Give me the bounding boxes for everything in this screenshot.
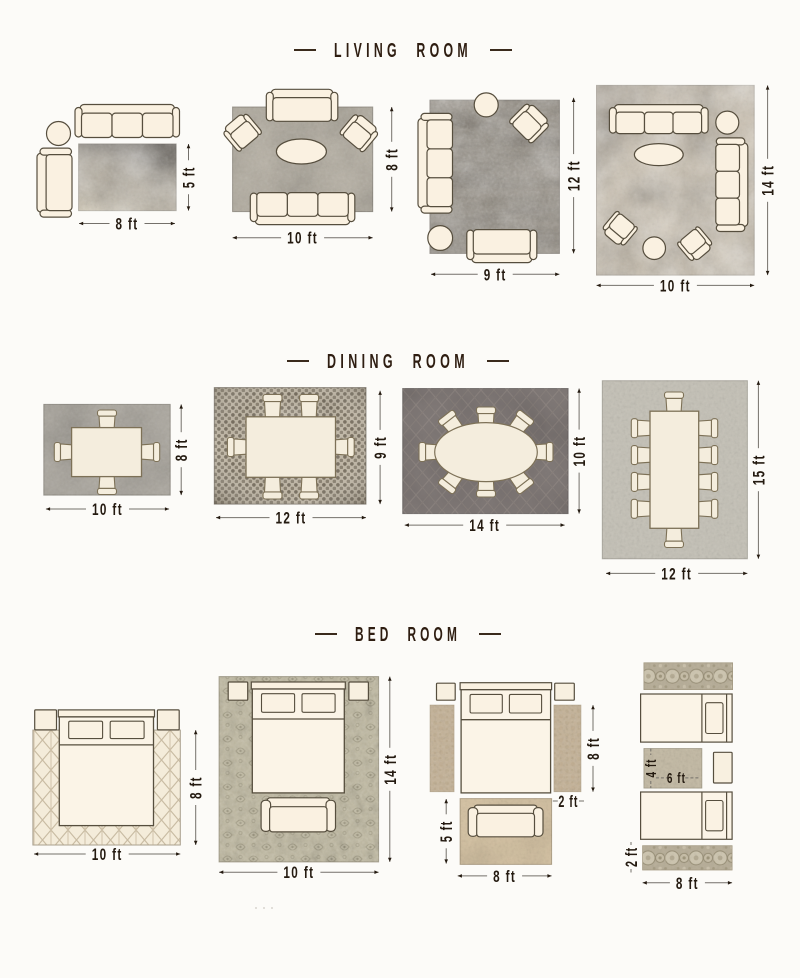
svg-text:15 ft: 15 ft <box>749 454 768 485</box>
svg-text:14 ft: 14 ft <box>469 516 500 535</box>
svg-text:2 ft: 2 ft <box>622 847 641 867</box>
svg-text:LIVING ROOM: LIVING ROOM <box>334 40 472 62</box>
svg-text:10 ft: 10 ft <box>660 276 691 295</box>
svg-text:4 ft: 4 ft <box>643 759 660 778</box>
svg-text:10 ft: 10 ft <box>92 845 123 864</box>
svg-text:14 ft: 14 ft <box>759 165 778 196</box>
svg-text:9 ft: 9 ft <box>484 265 507 284</box>
svg-text:10 ft: 10 ft <box>570 436 589 467</box>
svg-text:8 ft: 8 ft <box>493 867 516 886</box>
svg-text:BED ROOM: BED ROOM <box>355 624 461 646</box>
svg-text:12 ft: 12 ft <box>276 509 307 528</box>
svg-text:8 ft: 8 ft <box>187 776 206 799</box>
svg-text:2 ft: 2 ft <box>558 792 578 811</box>
svg-text:8 ft: 8 ft <box>116 215 139 234</box>
svg-text:12 ft: 12 ft <box>661 564 692 583</box>
svg-text:9 ft: 9 ft <box>371 436 390 459</box>
svg-text:8 ft: 8 ft <box>676 874 699 893</box>
svg-text:8 ft: 8 ft <box>172 438 191 461</box>
svg-text:8 ft: 8 ft <box>383 148 402 171</box>
svg-text:8 ft: 8 ft <box>584 737 603 760</box>
svg-text:5 ft: 5 ft <box>437 820 456 842</box>
svg-text:12 ft: 12 ft <box>565 160 584 191</box>
svg-text:DINING ROOM: DINING ROOM <box>327 351 469 373</box>
svg-text:10 ft: 10 ft <box>283 863 314 882</box>
svg-text:6 ft: 6 ft <box>667 770 686 787</box>
svg-text:5 ft: 5 ft <box>180 166 199 188</box>
svg-text:14 ft: 14 ft <box>381 754 400 785</box>
svg-text:10 ft: 10 ft <box>287 229 318 248</box>
svg-text:10 ft: 10 ft <box>92 500 123 519</box>
